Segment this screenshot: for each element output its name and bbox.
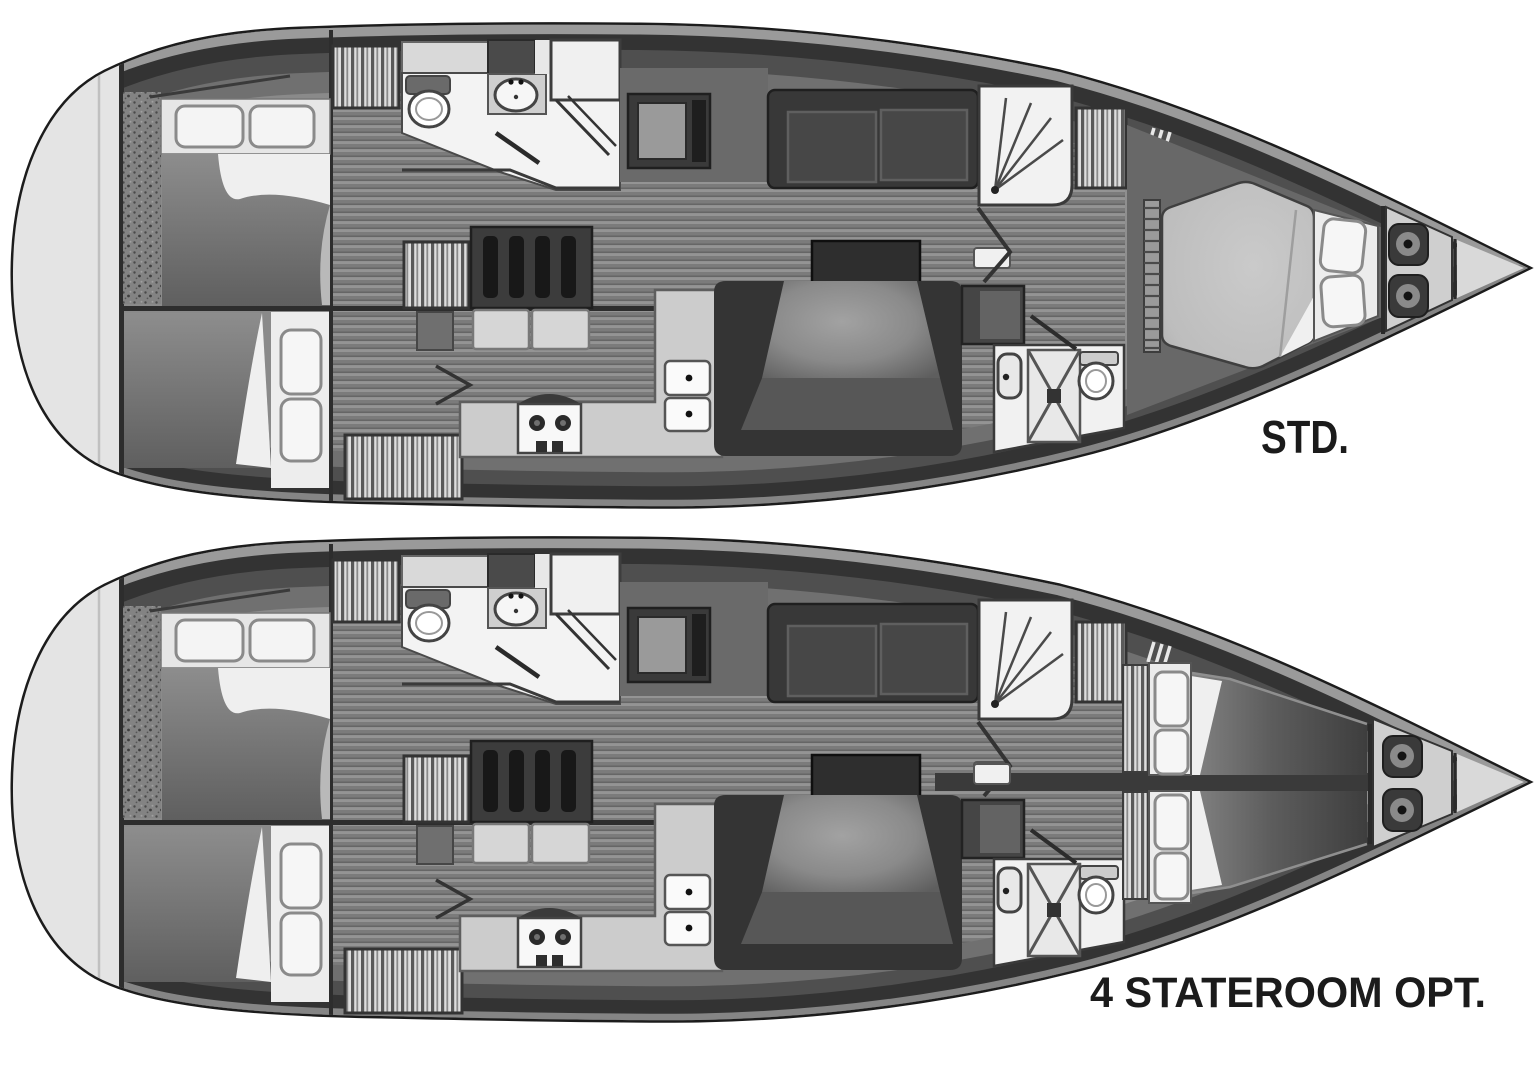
svg-text:4 STATEROOM OPT.: 4 STATEROOM OPT. xyxy=(1090,969,1486,1017)
svg-text:STD.: STD. xyxy=(1261,411,1349,463)
